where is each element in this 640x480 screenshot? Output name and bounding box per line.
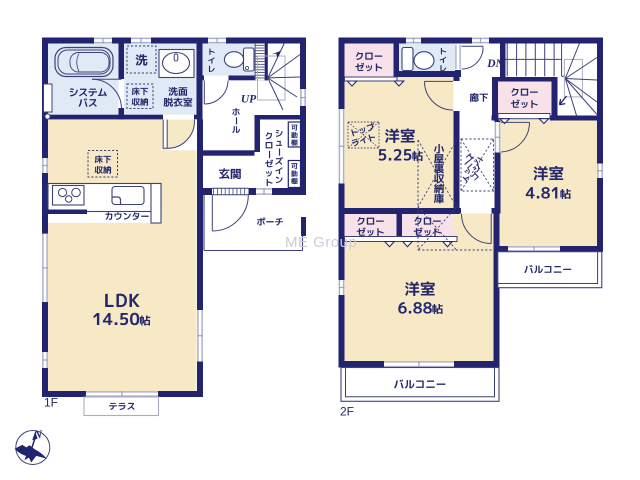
svg-text:1F: 1F — [44, 396, 58, 410]
svg-text:DN: DN — [486, 58, 504, 70]
svg-text:ME Group: ME Group — [285, 234, 357, 251]
svg-text:UP: UP — [241, 94, 257, 106]
svg-text:N: N — [33, 427, 44, 441]
svg-text:2F: 2F — [340, 405, 354, 419]
